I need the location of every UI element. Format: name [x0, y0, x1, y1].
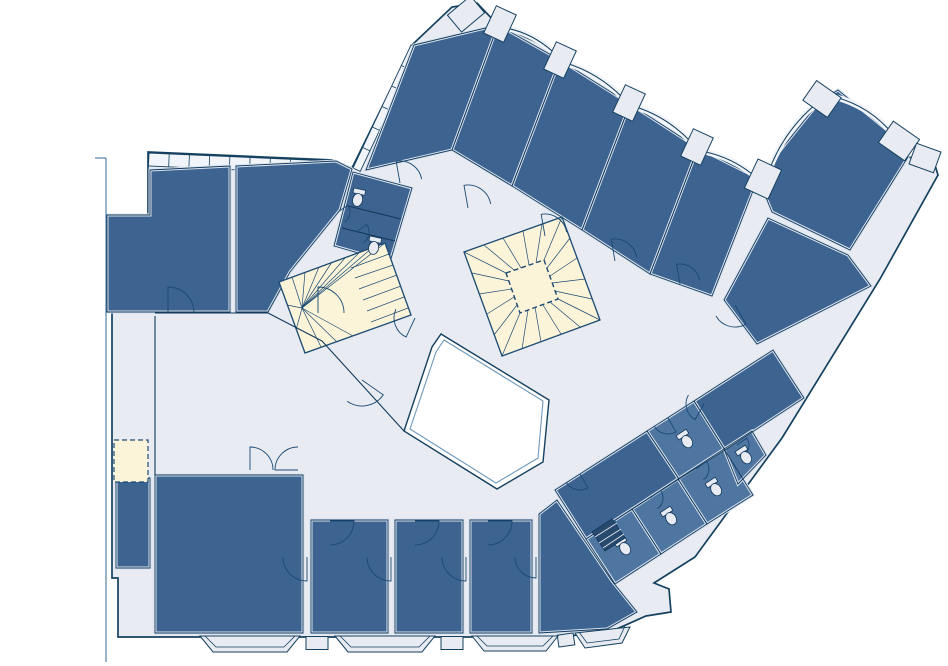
facade-pier [557, 633, 575, 647]
bay-window [200, 636, 300, 652]
facade-pier [306, 637, 328, 650]
room-left-strip [116, 478, 150, 568]
floor-plan-drawing [0, 0, 948, 666]
window-mullion [169, 154, 170, 167]
room-bottom-4 [470, 520, 532, 633]
room-bottom-3 [395, 520, 463, 633]
window-mullion [189, 155, 190, 168]
room-bottom-1 [155, 475, 303, 633]
elevator-shaft [114, 440, 148, 482]
floor-plan-page [0, 0, 948, 666]
facade-pier [441, 637, 463, 650]
bay-window [335, 636, 435, 652]
room-left-west [107, 166, 230, 312]
